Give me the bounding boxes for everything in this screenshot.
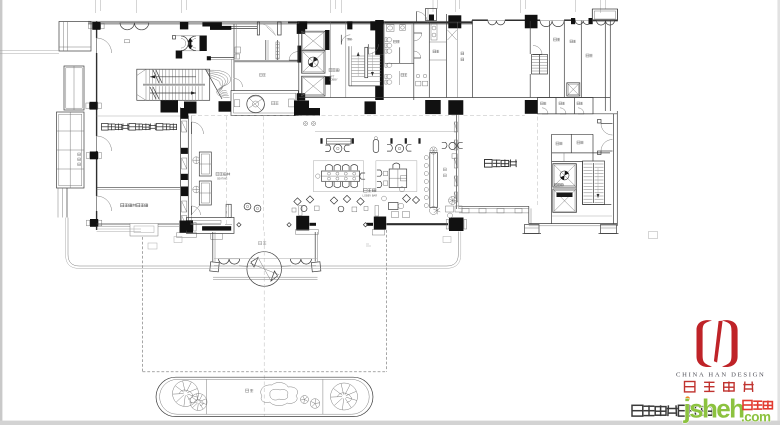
svg-text:CHINA HAN DESIGN: CHINA HAN DESIGN [676, 372, 765, 379]
svg-text:TEC: TEC [347, 38, 352, 42]
svg-text:.com: .com [741, 410, 771, 425]
svg-text:jsheh: jsheh [683, 394, 745, 424]
svg-text:FHC: FHC [370, 46, 375, 50]
svg-text:LOBBY BAR: LOBBY BAR [363, 194, 378, 198]
svg-text:LOBBY: LOBBY [329, 78, 338, 82]
svg-text:SEATING: SEATING [217, 178, 227, 181]
